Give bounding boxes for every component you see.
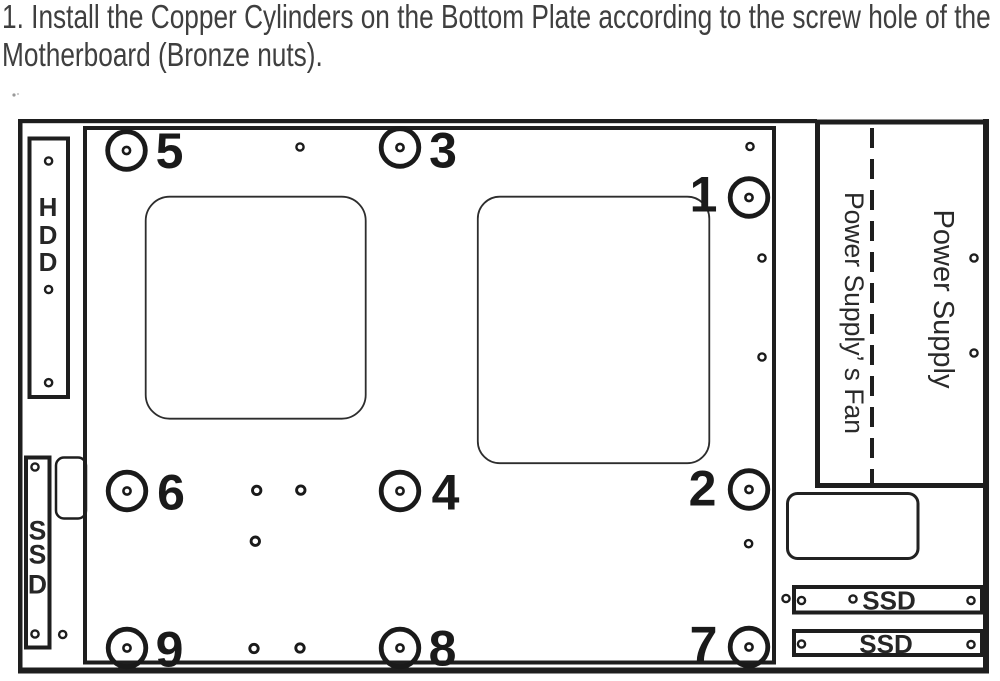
svg-text:D: D: [28, 570, 47, 600]
svg-text:3: 3: [429, 123, 457, 179]
svg-text:2: 2: [689, 461, 717, 517]
svg-text:6: 6: [157, 465, 185, 521]
svg-text:Power Supply’ s Fan: Power Supply’ s Fan: [839, 192, 869, 434]
svg-text:Power Supply: Power Supply: [927, 210, 959, 389]
svg-text:4: 4: [432, 465, 460, 521]
svg-text:8: 8: [429, 621, 457, 677]
svg-text:5: 5: [156, 123, 184, 179]
svg-text:S: S: [29, 540, 47, 570]
svg-text:9: 9: [156, 622, 184, 678]
svg-text:SSD: SSD: [862, 586, 915, 616]
svg-text:1: 1: [690, 167, 718, 223]
svg-text:7: 7: [690, 617, 718, 673]
svg-text:D: D: [39, 220, 58, 250]
svg-text:SSD: SSD: [859, 629, 912, 659]
svg-text:D: D: [39, 247, 58, 277]
svg-text:H: H: [39, 192, 58, 222]
